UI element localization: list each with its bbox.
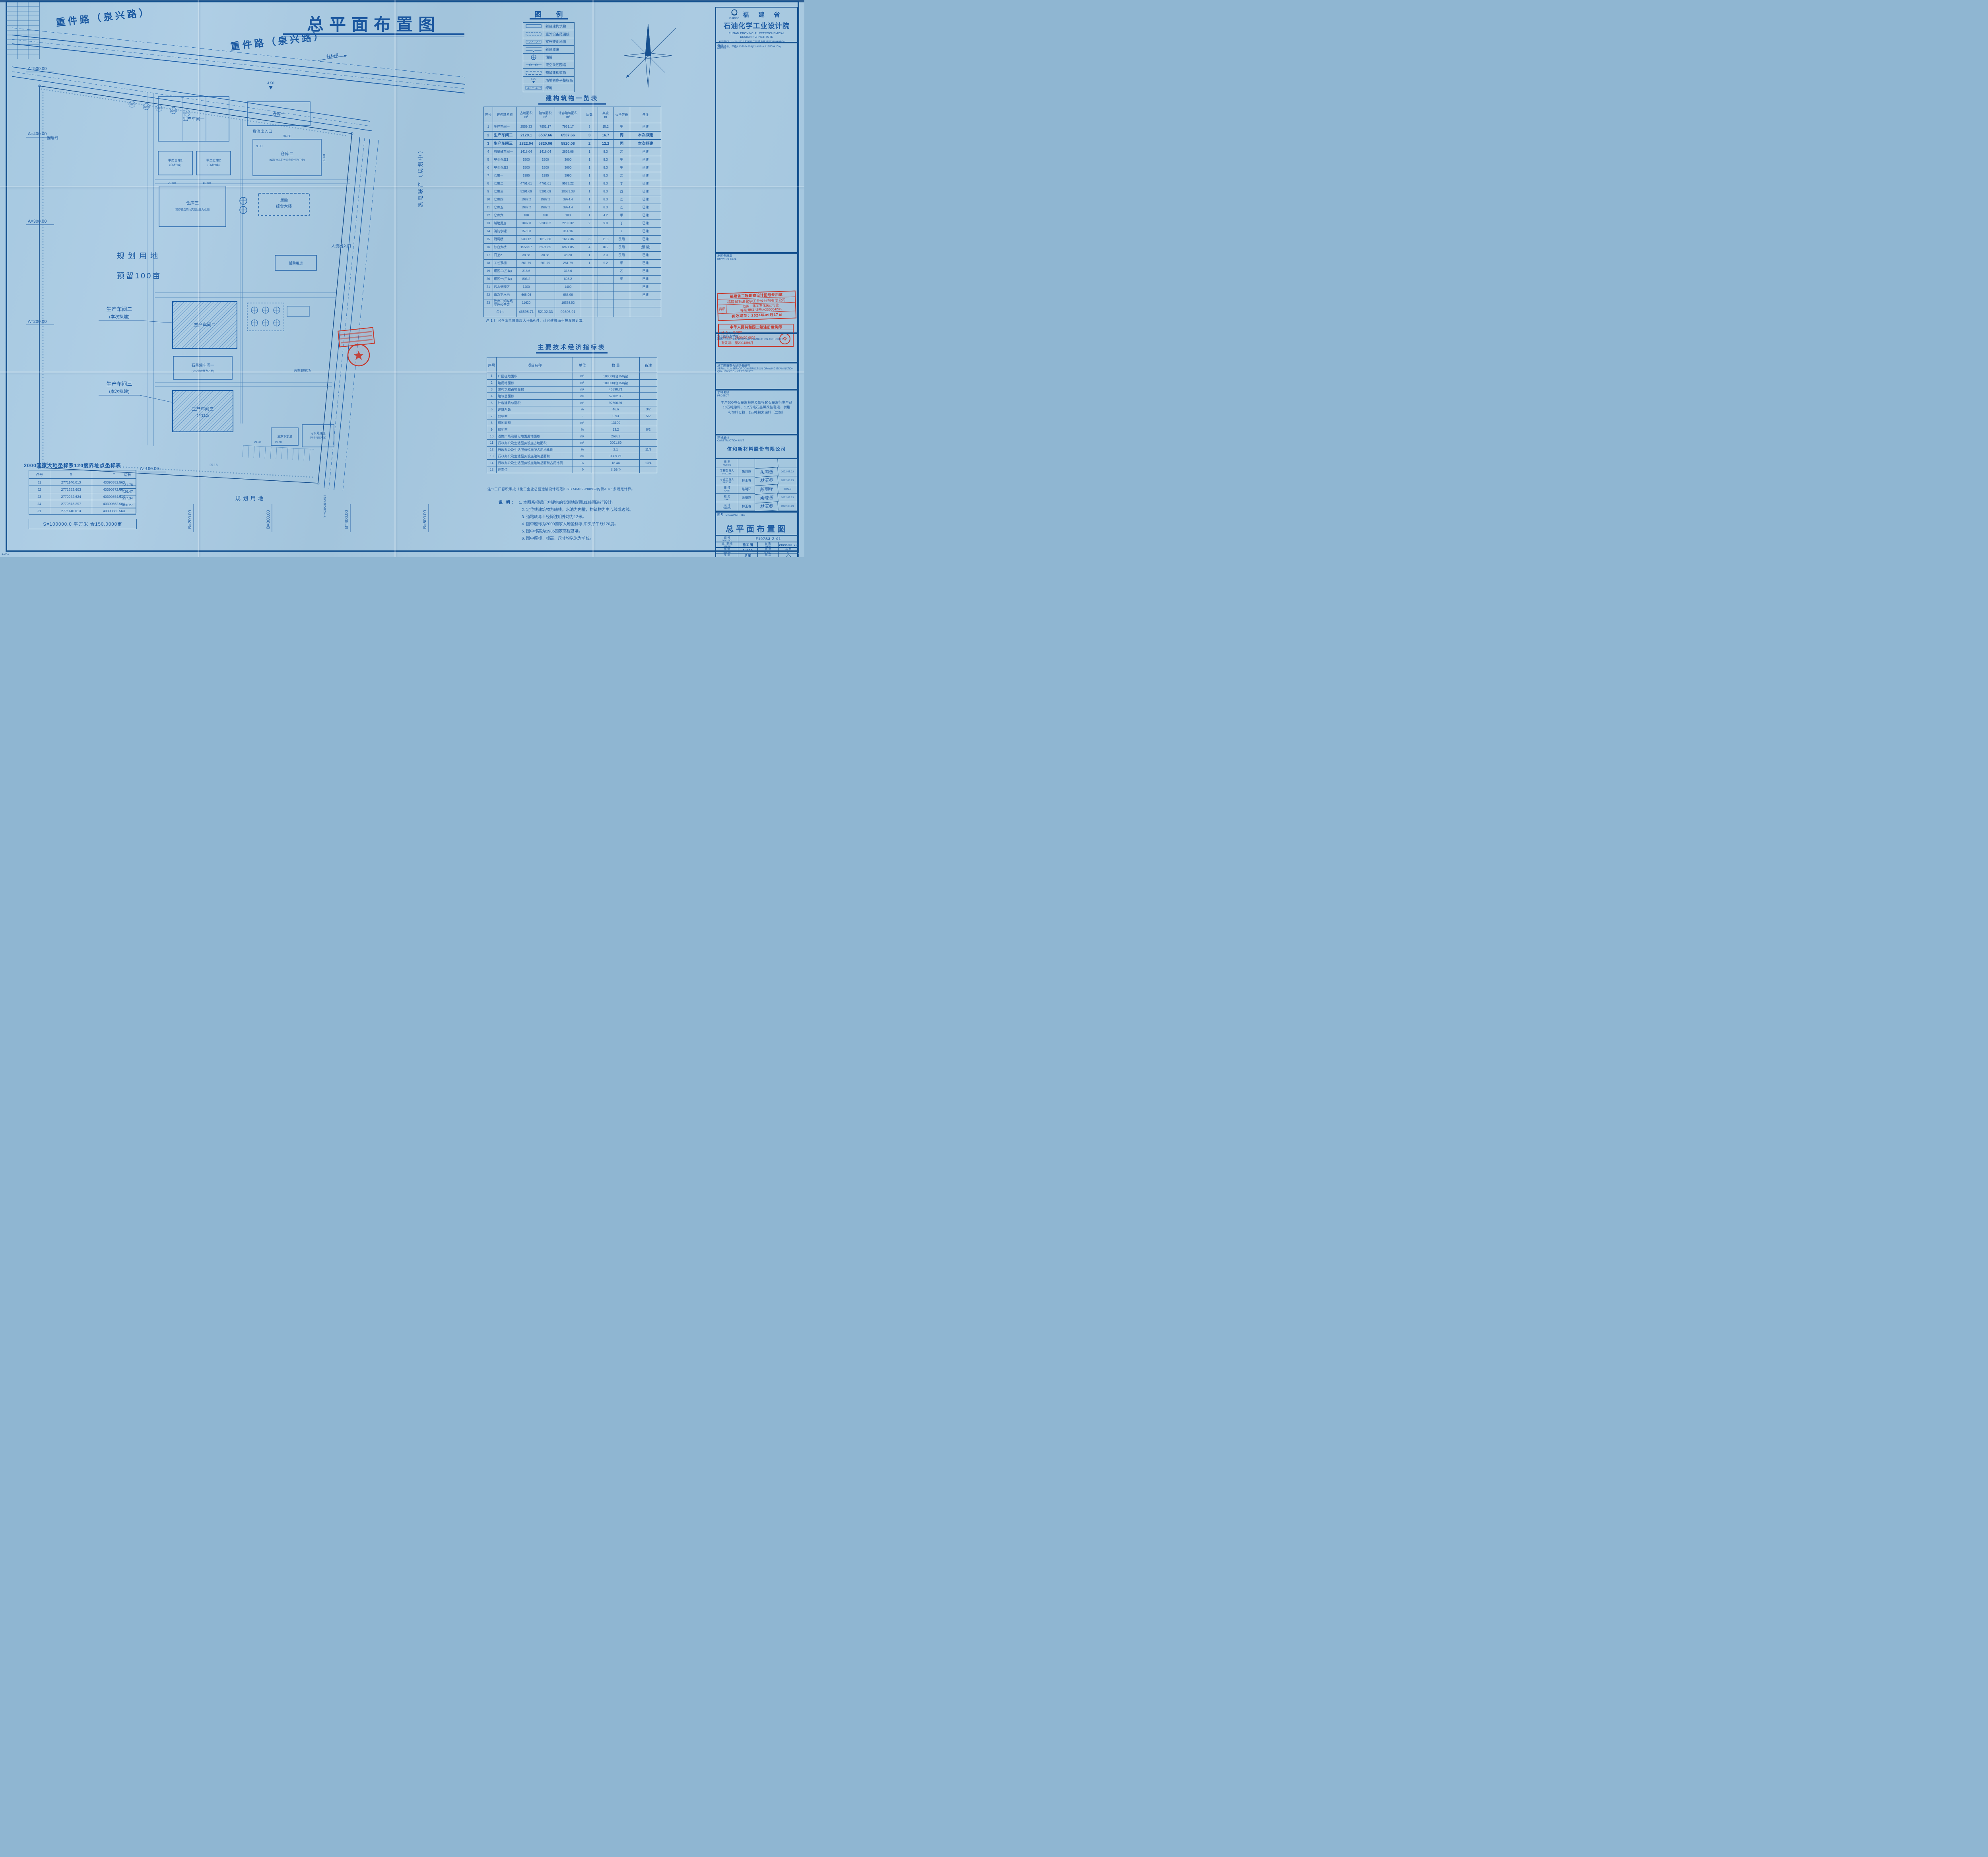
col-header: 火险等级 bbox=[613, 107, 630, 123]
legend-symbol-hard-ground bbox=[523, 38, 544, 45]
cell-fire-class: / bbox=[613, 228, 630, 236]
cell-counted-area: 16558.92 bbox=[555, 299, 581, 307]
sign-name: 林玉春 bbox=[738, 476, 755, 485]
project-label-cn: 工程名称 bbox=[717, 391, 729, 394]
bld-note-jia1: (自动仓库) bbox=[169, 163, 181, 167]
table-row: 18 工艺泵棚 261.79 261.79 261.79 1 5.2 甲 已建 bbox=[484, 260, 661, 268]
table-row: 3 建构筑物占地面积 m² 46598.71 bbox=[487, 386, 657, 393]
cell-fire-class: 戊 bbox=[613, 188, 630, 196]
table-row: 13 行政办公及生活服务设施建筑总面积 m² 8589.21 bbox=[487, 453, 657, 460]
cell-fire-class: 乙 bbox=[613, 172, 630, 180]
legend-row: 镂空铁艺围墙 bbox=[523, 61, 574, 68]
cell-item: 停车位 bbox=[497, 466, 573, 473]
cell-remark bbox=[640, 439, 657, 446]
seal-label-cn: 出图专用章 bbox=[717, 254, 732, 258]
cell-index: 1 bbox=[484, 123, 493, 132]
cell-quantity: 共93个 bbox=[592, 466, 640, 473]
storage-tanks bbox=[251, 307, 280, 326]
cell-unit: % bbox=[573, 446, 592, 453]
cell-height: 8.3 bbox=[598, 196, 613, 204]
table-row: 4 石墨烯车间一 1418.04 1418.04 2836.08 1 8.3 乙… bbox=[484, 148, 661, 156]
cell-footprint: 11630 bbox=[517, 299, 536, 307]
cell-x: 2770813.257 bbox=[50, 500, 92, 507]
cell-index: 13 bbox=[487, 453, 497, 460]
notes-label: 说 明： bbox=[499, 499, 516, 507]
callout-workshop2: 生产车间二 (本次拟建) bbox=[99, 306, 173, 323]
chp-planning-label: 热电联产（规划中） bbox=[417, 146, 423, 207]
cell-floor-area: 6537.66 bbox=[536, 131, 555, 140]
svg-text:4.50: 4.50 bbox=[267, 81, 274, 85]
sign-role: 校 对 CHKD bbox=[716, 494, 738, 503]
legend-label: 室外硬化地面 bbox=[544, 38, 574, 45]
table-row: 10 仓库四 1987.2 1987.2 3974.4 1 8.3 乙 已建 bbox=[484, 196, 661, 204]
table-row: 6 建筑系数 % 46.6 3/2 bbox=[487, 406, 657, 413]
cell-height: 8.3 bbox=[598, 148, 613, 156]
col-header: X bbox=[50, 470, 92, 479]
cell-floor-area bbox=[536, 276, 555, 284]
bld-label-wh1: 仓库一 bbox=[273, 111, 285, 117]
cell-counted-area: 38.38 bbox=[555, 252, 581, 260]
cell-quantity: 0.93 bbox=[592, 413, 640, 420]
cell-index: 14 bbox=[487, 460, 497, 466]
cell-total-counted: 92606.91 bbox=[555, 307, 581, 317]
sign-date: 2022.08.23 bbox=[778, 468, 797, 477]
cell-quantity: 13190 bbox=[592, 420, 640, 426]
svg-text:B=200.00: B=200.00 bbox=[188, 510, 192, 529]
cell-item: 行政办公及生活服务设施占地面积 bbox=[497, 439, 573, 446]
cell-quantity: 8589.21 bbox=[592, 453, 640, 460]
sign-role: 设 计 DRAWN bbox=[716, 502, 738, 511]
cell-name: 甲类仓库2 bbox=[493, 164, 517, 172]
cell-floor-area bbox=[536, 284, 555, 291]
cell-height: 3.3 bbox=[598, 252, 613, 260]
cell-quantity: 18.44 bbox=[592, 460, 640, 466]
cell-fire-class: 甲 bbox=[613, 123, 630, 132]
cell-index: 14 bbox=[484, 228, 493, 236]
wind-rose-icon bbox=[624, 24, 676, 87]
of-label: 共 页OF bbox=[779, 548, 799, 553]
indicator-table-body: 1 厂区征地面积 m² 100000(合150亩) 2 建用地面积 m² 100… bbox=[487, 373, 657, 473]
bld-label-complex: 综合大楼 bbox=[276, 204, 292, 209]
cell-counted-area: 2283.32 bbox=[555, 220, 581, 228]
tb-notes-section: 备注 NOTES bbox=[715, 43, 798, 253]
sign-name: 林玉春 bbox=[738, 502, 755, 511]
bld-note-jia2: (自动仓库) bbox=[208, 163, 219, 167]
legend-label: 储罐 bbox=[544, 54, 574, 61]
cell-counted-area: 318.6 bbox=[555, 268, 581, 276]
cell-fire-class: 乙 bbox=[613, 204, 630, 212]
cell-footprint: 1500 bbox=[517, 156, 536, 164]
org-name-en: FUJIAN PROVINCIAL PETROCHEMICAL DESIGNIN… bbox=[717, 31, 796, 39]
cell-fire-class: 民用 bbox=[613, 236, 630, 244]
cell-remark: 3/2 bbox=[640, 406, 657, 413]
cell-storeys: 1 bbox=[581, 196, 598, 204]
table-row: 17 门卫2 38.38 38.38 38.38 1 3.3 民用 已建 bbox=[484, 252, 661, 260]
drawing-seal-section: 出图专用章 DRAWING SEAL 福建省工程勘察设计图纸专用章 福建省石油化… bbox=[715, 253, 798, 333]
stage-value: 施工图 bbox=[738, 542, 758, 547]
svg-text:A=300.00: A=300.00 bbox=[28, 219, 47, 224]
revision-grid bbox=[6, 2, 39, 59]
dim-label: 25.13 bbox=[210, 463, 218, 467]
legend-title-underline bbox=[530, 18, 568, 19]
cell-storeys: 1 bbox=[581, 188, 598, 196]
cell-unit: 个 bbox=[573, 466, 592, 473]
cell-unit: m² bbox=[573, 420, 592, 426]
stage-date-row: 设计阶段STAGE 施工图 日 期DATE 2022.08.23 bbox=[715, 542, 798, 548]
cell-index: 10 bbox=[484, 196, 493, 204]
legend-row: 新建建构筑物 bbox=[523, 23, 574, 30]
legend-symbol-reserved-building bbox=[523, 69, 544, 76]
cell-height: 12.2 bbox=[598, 140, 613, 148]
cell-remark: 已建 bbox=[630, 252, 661, 260]
cell-index: 15 bbox=[487, 466, 497, 473]
cell-index: 5 bbox=[484, 156, 493, 164]
cell-floor-area: 5291.69 bbox=[536, 188, 555, 196]
note-item: 5. 图中标高为1985国家高程基准。 bbox=[522, 528, 685, 535]
unit-label-en: CONSTRUCTION UNIT bbox=[717, 440, 797, 443]
legend-row: 4.20 场地初步平整标高 bbox=[523, 76, 574, 84]
cell-storeys bbox=[581, 276, 598, 284]
cell-fire-class: 乙 bbox=[613, 268, 630, 276]
cell-index: 9 bbox=[487, 426, 497, 433]
cell-item: 建用地面积 bbox=[497, 379, 573, 386]
legend-row: 室外硬化地面 bbox=[523, 38, 574, 45]
cell-total-label: 合计: bbox=[484, 307, 517, 317]
cell-index: 15 bbox=[484, 236, 493, 244]
cell-x: 2771140.013 bbox=[50, 479, 92, 486]
notes-label-cn: 备注 bbox=[717, 44, 723, 47]
cell-point: J3 bbox=[29, 493, 50, 500]
cell-floor-area: 1500 bbox=[536, 156, 555, 164]
cell-index: 2 bbox=[487, 379, 497, 386]
cell-footprint: 1500 bbox=[517, 164, 536, 172]
exam-authority-section: 施工图审查单位 CONSTRUCTION DRAWING EXAMINATION… bbox=[715, 333, 798, 363]
cell-footprint: 1987.2 bbox=[517, 196, 536, 204]
coord-table-title: 2000国家大地坐标系120度界址点坐标表 bbox=[24, 461, 143, 469]
table-row: 14 消防水罐 157.08 314.16 / 已建 bbox=[484, 228, 661, 236]
svg-text:A=200.00: A=200.00 bbox=[28, 319, 47, 324]
legend-row: 储罐 bbox=[523, 53, 574, 61]
cell-fire-class: 丙 bbox=[613, 131, 630, 140]
signature: 林玉春 bbox=[755, 501, 778, 512]
table-row: 10 道路广场及硬化地面用地面积 m² 26882 bbox=[487, 433, 657, 440]
table-row: 4 建筑总面积 m² 52102.33 bbox=[487, 393, 657, 400]
cell-index: 12 bbox=[484, 212, 493, 220]
org-name-cn2: 石油化学工业设计院 bbox=[717, 21, 796, 31]
cell-height: 8.3 bbox=[598, 172, 613, 180]
unit-label-cn: 建设单位 bbox=[717, 436, 729, 439]
note-item: 6. 图中座标、标高、尺寸均以米为单位。 bbox=[522, 535, 685, 542]
cell-footprint: 318.6 bbox=[517, 268, 536, 276]
planning-land-bottom-label: 规划用地 bbox=[235, 495, 266, 501]
fence-line-label: 围墙线 bbox=[47, 136, 58, 140]
cell-fire-class bbox=[613, 299, 630, 307]
cell-remark bbox=[640, 453, 657, 460]
col-header: 点号 bbox=[29, 470, 50, 479]
note-item: 1. 本图系根据厂方提供的实测地形图.红线图进行设计。 bbox=[519, 499, 616, 507]
y-coordinate-label: Y=40390854.614 bbox=[323, 495, 326, 518]
cell-item: 绿地率 bbox=[497, 426, 573, 433]
cell-storeys: 1 bbox=[581, 260, 598, 268]
cell-footprint: 1097.8 bbox=[517, 220, 536, 228]
legend-symbol-equipment-line bbox=[523, 30, 544, 37]
sign-role: 工程负责人 PROJ.M. bbox=[716, 468, 738, 477]
cell-fire-class: 民用 bbox=[613, 252, 630, 260]
stake-number: 3185 bbox=[156, 108, 162, 110]
road-width-label: 9.00 bbox=[256, 144, 262, 148]
col-header: 建筑面积m² bbox=[536, 107, 555, 123]
cell-floor-area bbox=[536, 291, 555, 299]
cell-name: 石墨烯车间一 bbox=[493, 148, 517, 156]
cell-height bbox=[598, 299, 613, 307]
cell-unit: m² bbox=[573, 433, 592, 440]
approval-stamp bbox=[338, 328, 375, 366]
cell-counted-area: 668.96 bbox=[555, 291, 581, 299]
spec-value: 总图 bbox=[738, 554, 758, 557]
cell-index: 7 bbox=[484, 172, 493, 180]
cell-index: 11 bbox=[487, 439, 497, 446]
cell-index: 4 bbox=[487, 393, 497, 400]
cell-quantity: 52102.33 bbox=[592, 393, 640, 400]
cell-item: 行政办公及生活服务设施建筑总面积 bbox=[497, 453, 573, 460]
cell-remark: 已建 bbox=[630, 123, 661, 132]
cell-footprint: 533.12 bbox=[517, 236, 536, 244]
title-underline-thin bbox=[283, 37, 464, 37]
cell-footprint: 2559.33 bbox=[517, 123, 536, 132]
notes-label-en: NOTES bbox=[717, 48, 797, 51]
cell-footprint: 1400 bbox=[517, 284, 536, 291]
cell-footprint: 261.79 bbox=[517, 260, 536, 268]
cell-fire-class: 甲 bbox=[613, 212, 630, 220]
table-row: 3 生产车间三 2822.04 5820.06 5820.06 2 12.2 丙… bbox=[484, 140, 661, 148]
indicator-table-header: 序号 项目名称 单位 数 量 备注 bbox=[487, 357, 657, 373]
project-section: 工程名称 PROJECT 年产500吨石墨烯粉体及规模化石墨烯衍生产品 10万吨… bbox=[715, 390, 798, 435]
cell-index: 4 bbox=[484, 148, 493, 156]
cell-index: 20 bbox=[484, 276, 493, 284]
dim-label: 49.60 bbox=[203, 181, 211, 185]
paper-crease bbox=[0, 186, 804, 187]
cell-name: 工艺泵棚 bbox=[493, 260, 517, 268]
note-item: 4. 图中座标为2000国家大地坐标系,中央子午线120度。 bbox=[522, 521, 685, 528]
cell-name: 生产车间二 bbox=[493, 131, 517, 140]
building-table-body: 1 生产车间一 2559.33 7951.17 7951.17 3 15.2 甲… bbox=[484, 123, 661, 317]
rev-label: 版 次REV. bbox=[758, 554, 779, 557]
cell-index: 11 bbox=[484, 204, 493, 212]
indicator-table-note: 注:1工厂容积率按《化工企业总图运输设计规范》GB 50489-2009中的第A… bbox=[487, 487, 635, 491]
cell-footprint: 1995 bbox=[517, 172, 536, 180]
callout-text: (本次拟建) bbox=[109, 314, 129, 319]
col-header: 序号 bbox=[484, 107, 493, 123]
cell-floor-area: 1617.36 bbox=[536, 236, 555, 244]
cell-side-length: 426.47 bbox=[119, 488, 136, 495]
sign-name: 陈明环 bbox=[738, 485, 755, 494]
legend-symbol-new-building bbox=[523, 23, 544, 30]
cell-point: J1 bbox=[29, 507, 50, 515]
cell-footprint: 2129.1 bbox=[517, 131, 536, 140]
cell-counted-area: 803.2 bbox=[555, 276, 581, 284]
cell-counted-area: 1400 bbox=[555, 284, 581, 291]
sign-role: 审 核 APPR bbox=[716, 485, 738, 494]
cell-height: 4.2 bbox=[598, 212, 613, 220]
cell-index: 8 bbox=[487, 420, 497, 426]
legend-title: 图 例 bbox=[523, 9, 575, 19]
stage-label: 设计阶段STAGE bbox=[716, 542, 738, 547]
cell-index: 17 bbox=[484, 252, 493, 260]
cell-floor-area: 180 bbox=[536, 212, 555, 220]
cell-height: 8.3 bbox=[598, 164, 613, 172]
legend-label: 场地初步平整标高 bbox=[544, 77, 574, 84]
cell-floor-area: 1500 bbox=[536, 164, 555, 172]
cell-height: 16.7 bbox=[598, 131, 613, 140]
cell-storeys: 1 bbox=[581, 148, 598, 156]
org-header: FJPEC 福 建 省 石油化学工业设计院 FUJIAN PROVINCIAL … bbox=[715, 7, 798, 43]
table-row: 7 容积率 - 0.93 5/2 bbox=[487, 413, 657, 420]
cell-counted-area: 314.16 bbox=[555, 228, 581, 236]
table-row: 12 仓库六 180 180 180 1 4.2 甲 已建 bbox=[484, 212, 661, 220]
building-table-header: 序号 建构筑名称 占地面积m² 建筑面积m² 计容建筑面积m² 层数 高度m 火… bbox=[484, 107, 661, 123]
col-header: 边长 bbox=[119, 470, 136, 479]
cell-item: 建构筑物占地面积 bbox=[497, 386, 573, 393]
road-label: 重件路（泉兴路） bbox=[55, 7, 151, 29]
page-title: 总平面布置图 bbox=[278, 11, 469, 35]
cell-fire-class bbox=[613, 291, 630, 299]
cell-item: 行政办公及生活服务设施建筑总面积占用比例 bbox=[497, 460, 573, 466]
project-name: 年产500吨石墨烯粉体及规模化石墨烯衍生产品 10万吨涂料、1.2万吨石墨烯改性… bbox=[716, 400, 797, 415]
cell-quantity: 2091.69 bbox=[592, 439, 640, 446]
cell-footprint: 5291.69 bbox=[517, 188, 536, 196]
cell-floor-area bbox=[536, 228, 555, 236]
cell-index: 6 bbox=[487, 406, 497, 413]
sheet-label: 第 页SHEET bbox=[758, 548, 779, 553]
cell-item: 容积率 bbox=[497, 413, 573, 420]
cell-remark bbox=[640, 466, 657, 473]
cell-index: 2 bbox=[484, 131, 493, 140]
cell-item: 道路广场及硬化地面用地面积 bbox=[497, 433, 573, 440]
cell-side-length: 430.27 bbox=[119, 502, 136, 509]
table-row: 12 行政办公及生活服务设施所占用地比例 % 2.1 11/2 bbox=[487, 446, 657, 453]
spec-rev-row: 专 业SPEC. 总图 版 次REV. 0 bbox=[715, 554, 798, 557]
bld-label-jia1: 甲类仓库1 bbox=[168, 158, 183, 162]
exam-label-cn: 施工图审查单位 bbox=[717, 334, 738, 338]
cell-index: 1 bbox=[487, 373, 497, 380]
bld-note-sewage: （不含可燃污油） bbox=[309, 436, 328, 439]
elevation-mark: 4.50 bbox=[267, 81, 274, 89]
table-row: 22 清净下水池 668.96 668.96 已建 bbox=[484, 291, 661, 299]
cell-counted-area: 3974.4 bbox=[555, 204, 581, 212]
cell-footprint: 38.38 bbox=[517, 252, 536, 260]
cell-remark: 已建 bbox=[630, 276, 661, 284]
cell-quantity: 46598.71 bbox=[592, 386, 640, 393]
paper-crease bbox=[0, 371, 804, 373]
construction-unit-name: 信和新材料股份有限公司 bbox=[716, 446, 797, 452]
table-total-row: 合计: 46598.71 52102.33 92606.91 bbox=[484, 307, 661, 317]
cell-height bbox=[598, 276, 613, 284]
signature-grid: 审 定 AUTH'D 工程负责人 PROJ.M. 朱鸿燕 朱鸿燕 2022.08… bbox=[715, 458, 798, 512]
building-table-title: 建构筑物一览表 bbox=[538, 94, 606, 105]
cell-unit: m² bbox=[573, 400, 592, 406]
table-row: 13 辅助用房 1097.8 2283.32 2283.32 2 9.0 丁 已… bbox=[484, 220, 661, 228]
cell-name: 生产车间三 bbox=[493, 140, 517, 148]
cell-item: 行政办公及生活服务设施所占用地比例 bbox=[497, 446, 573, 453]
cell-item: 绿地面积 bbox=[497, 420, 573, 426]
cell-point: J1 bbox=[29, 479, 50, 486]
cell-floor-area bbox=[536, 299, 555, 307]
cell-name: 生产车间一 bbox=[493, 123, 517, 132]
table-row: 15 停车位 个 共93个 bbox=[487, 466, 657, 473]
sign-role: 审 定 AUTH'D bbox=[716, 459, 738, 468]
cell-unit: % bbox=[573, 426, 592, 433]
cell-side-length: 231.78 bbox=[119, 482, 136, 489]
col-header: 层数 bbox=[581, 107, 598, 123]
col-header: 数 量 bbox=[592, 357, 640, 373]
note-item: 2. 定位线建筑物为轴线，水池为内壁，构筑物为中心线或边线。 bbox=[522, 507, 685, 514]
cell-name: 管廊、卸车场 室外设备等 bbox=[493, 299, 517, 307]
cell-unit: m² bbox=[573, 373, 592, 380]
cell-index: 3 bbox=[487, 386, 497, 393]
indicator-table: 序号 项目名称 单位 数 量 备注 1 厂区征地面积 m² 100000(合15… bbox=[487, 357, 657, 473]
table-row: 2 建用地面积 m² 100000(合150亩) bbox=[487, 379, 657, 386]
cell-index: 6 bbox=[484, 164, 493, 172]
scale-sheet-row: 比 例SCALE 1:500 第 页SHEET 共 页OF bbox=[715, 548, 798, 554]
building-table-note: 注:1 厂房仓库单层高度大于8米时，计容建筑面积按双层计算。 bbox=[486, 318, 586, 323]
cell-height bbox=[598, 284, 613, 291]
axis-a-labels: A=500.00 A=400.00 A=300.00 A=200.00 A=10… bbox=[26, 66, 166, 472]
bld-note-wh3: (储存物品的火灾危险性为戊类) bbox=[175, 208, 210, 211]
cell-counted-area: 3990 bbox=[555, 172, 581, 180]
table-row: 11 行政办公及生活服务设施占地面积 m² 2091.69 bbox=[487, 439, 657, 446]
cell-storeys: 2 bbox=[581, 220, 598, 228]
cell-height: 8.3 bbox=[598, 204, 613, 212]
cell-name: 仓库三 bbox=[493, 188, 517, 196]
cell-fire-class: 甲 bbox=[613, 164, 630, 172]
cell-remark: 已建 bbox=[630, 291, 661, 299]
table-row: 7 仓库一 1995 1995 3990 1 8.3 乙 已建 bbox=[484, 172, 661, 180]
seal-label-en: DRAWING SEAL bbox=[717, 258, 797, 261]
sign-name bbox=[738, 459, 755, 468]
drawing-title-section: 图名 DRAWING TITLE 总平面布置图 bbox=[715, 512, 798, 536]
org-name-cn1: 福 建 省 bbox=[743, 10, 784, 19]
col-header: 建构筑名称 bbox=[493, 107, 517, 123]
sign-date: 2022.08.23 bbox=[778, 502, 797, 511]
cell-remark bbox=[640, 433, 657, 440]
cell-remark bbox=[640, 420, 657, 426]
bld-note-wh2: (储存物品的火灾危险性为丁类) bbox=[270, 158, 305, 161]
sign-role: 专业负责人 SPEC.M. bbox=[716, 476, 738, 485]
cell-counted-area: 3000 bbox=[555, 156, 581, 164]
cell-quantity: 26882 bbox=[592, 433, 640, 440]
cell-fire-class: 民用 bbox=[613, 244, 630, 252]
cell-name: 仓库一 bbox=[493, 172, 517, 180]
table-row: 21 污水处理区 1400 1400 已建 bbox=[484, 284, 661, 291]
table-row: 5 计容建筑总面积 m² 92606.91 bbox=[487, 400, 657, 406]
cell-storeys bbox=[581, 299, 598, 307]
col-header: 单位 bbox=[573, 357, 592, 373]
cell-quantity: 100000(合150亩) bbox=[592, 373, 640, 380]
cell-floor-area: 1418.04 bbox=[536, 148, 555, 156]
table-row: 2 生产车间二 2129.1 6537.66 6537.66 3 16.7 丙 … bbox=[484, 131, 661, 140]
cell-name: 仓库四 bbox=[493, 196, 517, 204]
svg-text:4.20: 4.20 bbox=[531, 78, 536, 81]
cell-name: 辅助用房 bbox=[493, 220, 517, 228]
cell-storeys: 1 bbox=[581, 156, 598, 164]
cell-name: 清净下水池 bbox=[493, 291, 517, 299]
dim-label: 94.60 bbox=[283, 134, 291, 138]
stake-number: 3187 bbox=[184, 113, 190, 115]
sign-date bbox=[778, 459, 797, 468]
cell-fire-class: 甲 bbox=[613, 276, 630, 284]
table-row: 6 甲类仓库2 1500 1500 3000 1 8.3 甲 已建 bbox=[484, 164, 661, 172]
cell-counted-area: 5820.06 bbox=[555, 140, 581, 148]
